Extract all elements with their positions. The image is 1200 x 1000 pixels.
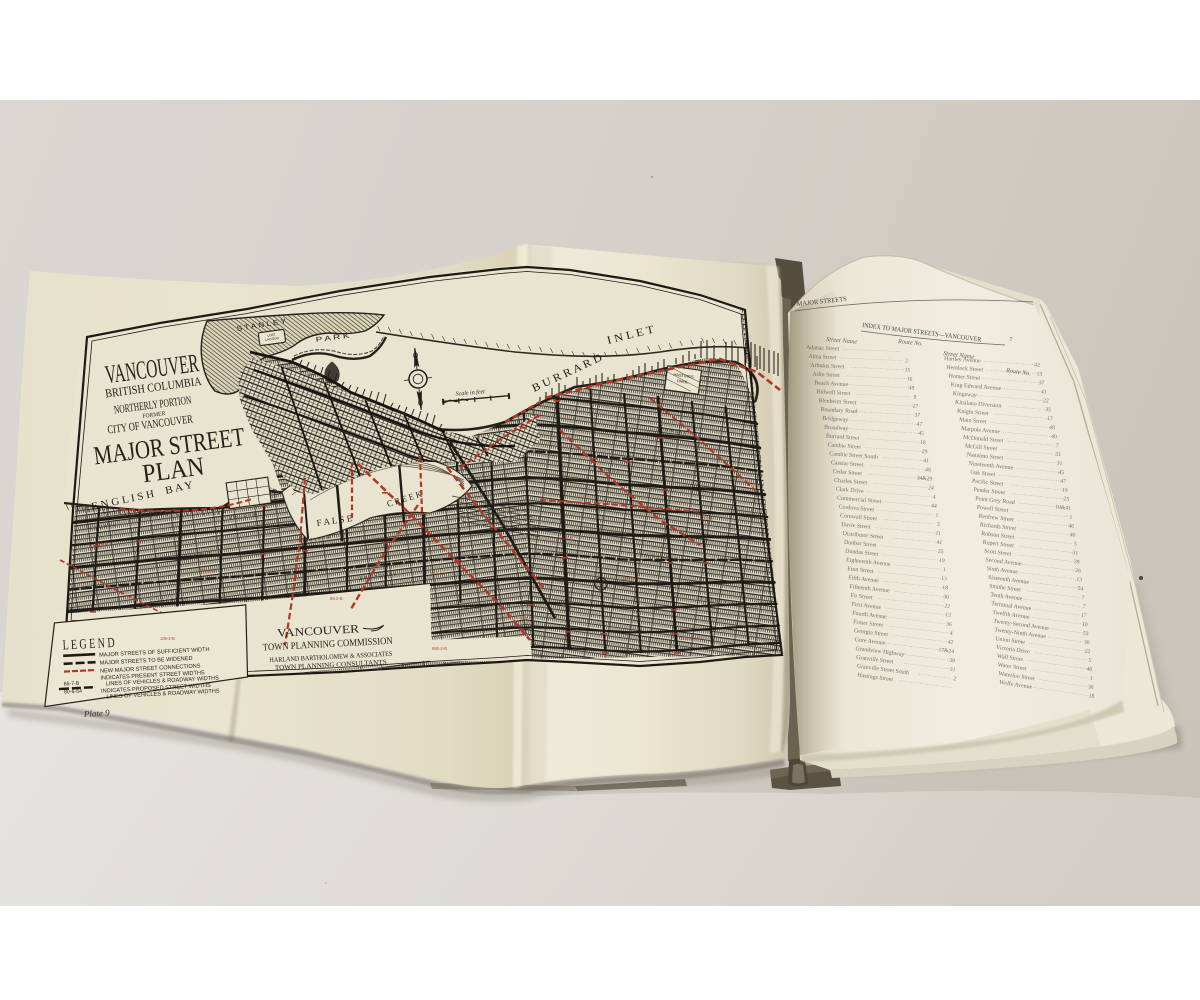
svg-text:31: 31 (949, 667, 956, 674)
svg-text:66-2-B: 66-2-B (95, 541, 108, 546)
svg-text:15: 15 (905, 367, 911, 373)
svg-text:66-2-B: 66-2-B (700, 516, 713, 521)
svg-text:44: 44 (931, 503, 937, 509)
svg-text:27: 27 (913, 404, 919, 410)
svg-text:47: 47 (1060, 479, 1066, 486)
svg-text:42: 42 (947, 639, 953, 646)
svg-text:25: 25 (1063, 496, 1069, 503)
svg-text:41: 41 (936, 540, 942, 547)
svg-text:48: 48 (1049, 425, 1055, 431)
svg-text:45: 45 (918, 431, 924, 437)
svg-text:18: 18 (920, 440, 926, 446)
svg-text:13: 13 (941, 576, 947, 583)
svg-text:47: 47 (916, 422, 922, 428)
svg-text:39: 39 (1073, 559, 1079, 566)
svg-text:42: 42 (1034, 362, 1040, 368)
svg-text:66-7-B: 66-7-B (64, 681, 80, 688)
svg-text:31: 31 (1072, 550, 1078, 557)
svg-text:109-6-54: 109-6-54 (200, 568, 217, 573)
svg-text:45: 45 (1058, 470, 1064, 477)
svg-text:16: 16 (907, 376, 913, 382)
svg-text:35: 35 (1045, 407, 1051, 413)
svg-text:13: 13 (1076, 577, 1082, 584)
svg-text:66-2-B: 66-2-B (330, 596, 343, 601)
svg-text:54: 54 (1077, 586, 1083, 593)
svg-text:41: 41 (923, 458, 929, 464)
svg-text:11: 11 (935, 531, 941, 537)
svg-text:12: 12 (945, 612, 951, 619)
svg-text:53: 53 (1082, 631, 1089, 638)
svg-text:26: 26 (1075, 568, 1081, 575)
svg-text:Plate 9: Plate 9 (83, 708, 111, 719)
svg-text:18: 18 (1088, 693, 1095, 700)
svg-text:29: 29 (922, 449, 928, 455)
svg-text:22: 22 (1043, 398, 1049, 404)
svg-text:22: 22 (944, 603, 950, 610)
svg-text:18: 18 (942, 585, 948, 592)
svg-text:36: 36 (1087, 684, 1094, 691)
svg-text:30: 30 (943, 594, 949, 601)
svg-text:33: 33 (1055, 452, 1061, 459)
svg-text:2: 2 (905, 358, 908, 364)
svg-text:40: 40 (1051, 434, 1057, 440)
svg-text:49: 49 (909, 385, 915, 391)
svg-text:17: 17 (1081, 613, 1088, 620)
svg-text:36: 36 (946, 621, 952, 628)
svg-text:80-6-54: 80-6-54 (430, 571, 445, 576)
svg-text:31: 31 (1056, 461, 1062, 468)
svg-text:30: 30 (1083, 640, 1090, 647)
svg-text:41: 41 (1041, 389, 1047, 395)
svg-text:13: 13 (1036, 371, 1042, 377)
svg-text:46: 46 (1068, 523, 1074, 530)
svg-text:19: 19 (1062, 487, 1068, 494)
svg-text:102-6-54: 102-6-54 (620, 576, 637, 581)
svg-text:66-2-B: 66-2-B (560, 536, 573, 541)
svg-text:34&29: 34&29 (917, 475, 933, 482)
svg-text:48: 48 (925, 467, 931, 473)
svg-text:37: 37 (914, 413, 920, 419)
svg-text:122-16-54: 122-16-54 (680, 636, 700, 641)
svg-text:17: 17 (1047, 416, 1053, 422)
svg-text:25: 25 (938, 549, 944, 556)
svg-text:39: 39 (949, 658, 955, 665)
svg-text:19: 19 (939, 558, 945, 565)
svg-text:9: 9 (913, 395, 916, 401)
svg-text:22: 22 (1084, 648, 1091, 655)
svg-text:40: 40 (1069, 532, 1075, 539)
svg-text:L E G E N D: L E G E N D (62, 636, 115, 654)
svg-text:80-6-54: 80-6-54 (520, 616, 535, 621)
svg-text:10: 10 (1082, 622, 1089, 629)
svg-text:37: 37 (1039, 380, 1045, 386)
svg-text:106-2-B: 106-2-B (160, 636, 175, 641)
svg-text:46: 46 (1086, 666, 1093, 673)
svg-text:24: 24 (928, 485, 934, 491)
svg-text:692-2-B: 692-2-B (432, 646, 447, 651)
